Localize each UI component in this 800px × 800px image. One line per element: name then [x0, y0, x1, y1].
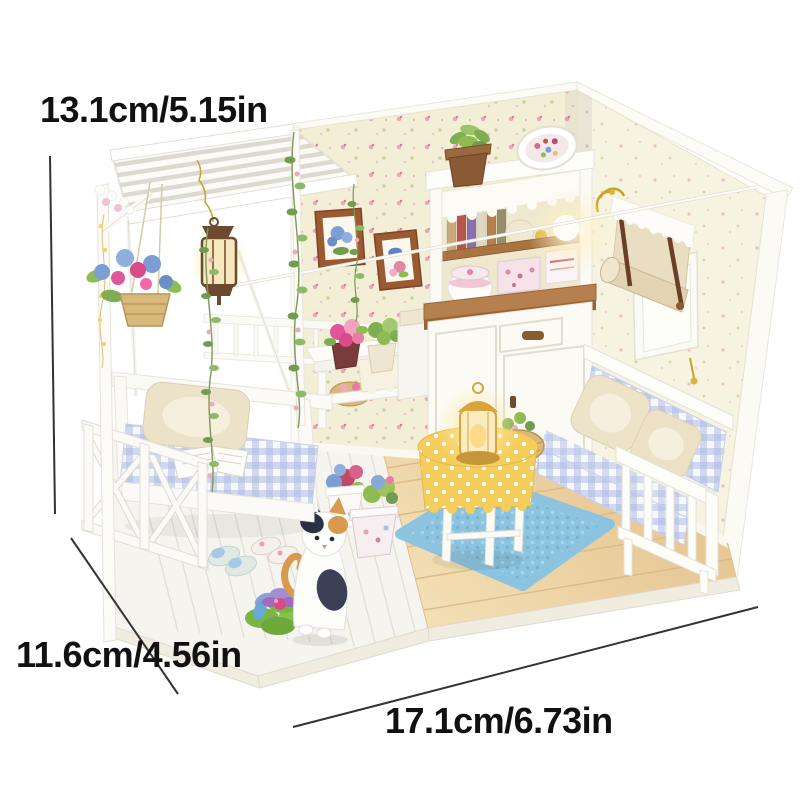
height-label: 13.1cm/5.15in [40, 92, 268, 128]
depth-label: 11.6cm/4.56in [16, 637, 242, 673]
width-label: 17.1cm/6.73in [385, 703, 613, 739]
frame-bird [374, 230, 422, 290]
side-shelf [398, 318, 428, 400]
pergola-post [97, 184, 116, 642]
height-dimension-line [50, 156, 55, 514]
product-image: 13.1cm/5.15in 11.6cm/4.56in 17.1cm/6.73i… [0, 0, 800, 800]
floral-box [498, 257, 540, 294]
swing-pillow [141, 381, 251, 454]
drawer-handle [522, 331, 544, 340]
